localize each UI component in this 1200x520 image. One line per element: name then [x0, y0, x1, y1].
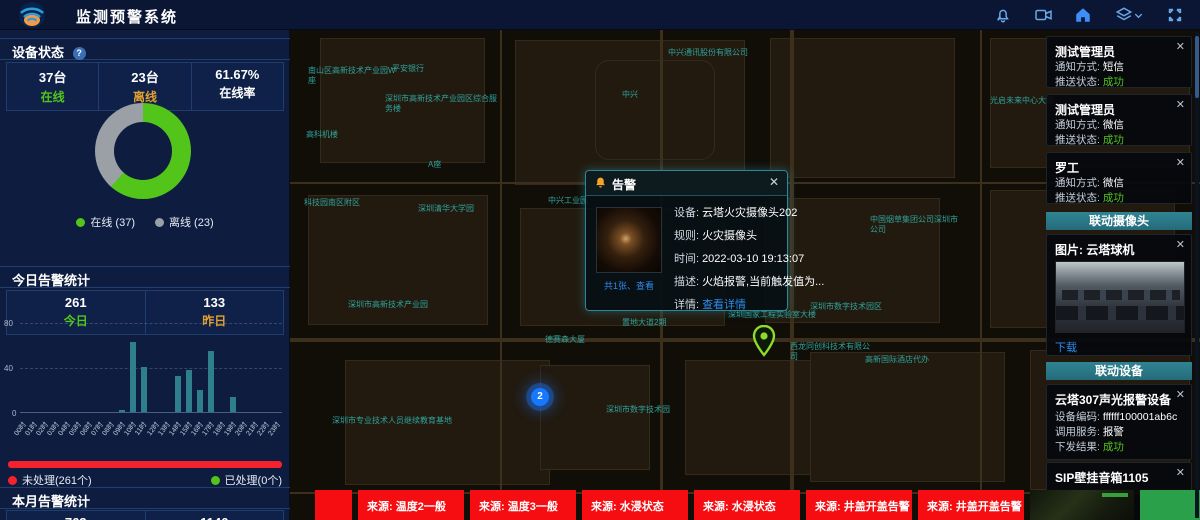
alert-source-chip[interactable]: 来源: 井盖开盖告警	[806, 490, 912, 520]
bar-plot-area	[20, 323, 282, 413]
notification-card-row-value: 短信	[1103, 61, 1124, 73]
device-status-header: 设备状态 ?	[0, 38, 290, 60]
linked-device-card-row-label: 设备编码:	[1055, 411, 1103, 423]
linked-camera-header[interactable]: 联动摄像头	[1046, 212, 1192, 230]
device-donut-legend: 在线 (37)离线 (23)	[0, 213, 290, 231]
scrollbar-track[interactable]	[1195, 32, 1199, 518]
camera-snapshot-image[interactable]	[1055, 261, 1185, 333]
device-stat-value: 61.67%	[192, 67, 283, 82]
bar	[130, 342, 136, 412]
linked-device-card-row-label: 下发结果:	[1055, 441, 1103, 453]
alert-field-row: 描述:火焰报警,当前触发值为...	[674, 273, 784, 289]
notification-card-row-value: 微信	[1103, 177, 1124, 189]
bar	[208, 351, 214, 412]
close-icon[interactable]: ✕	[1176, 388, 1185, 401]
alert-popup: 告警 ✕ 共1张、查看 设备:云塔火灾摄像头202规则:火灾摄像头时间:2022…	[585, 170, 788, 311]
notification-card-row-label: 推送状态:	[1055, 134, 1103, 146]
notification-card-row-value: 微信	[1103, 119, 1124, 131]
linked-device-card-row: 设备编码: ffffff100001ab6c	[1055, 409, 1177, 424]
left-stats-panel: 设备状态 ? 37台在线23台离线61.67%在线率 在线 (37)离线 (23…	[0, 30, 290, 520]
notification-card-row-value: 成功	[1103, 192, 1124, 204]
notification-card-title: 罗工	[1055, 159, 1079, 176]
layers-icon[interactable]	[1112, 4, 1146, 26]
video-camera-icon[interactable]	[1032, 4, 1054, 26]
linked-device-card-row-value: ffffff100001ab6c	[1103, 411, 1177, 423]
device-stat-value: 37台	[7, 67, 98, 86]
bar	[186, 370, 192, 412]
app-logo-icon	[16, 1, 48, 29]
alert-image-caption[interactable]: 共1张、查看	[592, 279, 666, 292]
notification-card: 测试管理员✕通知方式: 微信推送状态: 成功	[1046, 94, 1192, 146]
month-stat-value: 763	[7, 515, 145, 520]
map-place-label: 平安银行	[392, 64, 452, 74]
map-place-label: 高科机楼	[306, 130, 366, 140]
close-icon[interactable]: ✕	[1176, 466, 1185, 479]
monitoring-dashboard: 监测预警系统	[0, 0, 1200, 520]
device-stat-label: 在线率	[192, 84, 283, 101]
alert-popup-title: 告警	[612, 176, 636, 193]
map-place-label: 深圳市高新技术产业园	[348, 300, 433, 310]
notification-card-row: 推送状态: 成功	[1055, 190, 1124, 205]
map-place-label: 深圳市专业技术人员继续教育基地	[332, 416, 452, 426]
device-stat-cell: 61.67%在线率	[192, 63, 283, 110]
close-icon[interactable]: ✕	[1176, 40, 1185, 53]
device-stat-cell: 37台在线	[7, 63, 99, 110]
alert-source-chip[interactable]: 来源: 水浸状态	[582, 490, 688, 520]
alert-source-chip[interactable]: 来源: 水浸状态	[694, 490, 800, 520]
map-place-label: 置地大道2期	[622, 318, 692, 328]
notification-card: 测试管理员✕通知方式: 短信推送状态: 成功	[1046, 36, 1192, 88]
map-place-label: 中兴	[622, 90, 652, 100]
camera-thumbnail[interactable]	[1030, 490, 1134, 520]
close-icon[interactable]: ✕	[769, 175, 779, 189]
progress-legend: 未处理(261个) 已处理(0个)	[8, 472, 282, 486]
map-place-label: 深圳市数字技术园区	[810, 302, 890, 312]
alert-field-row: 设备:云塔火灾摄像头202	[674, 204, 784, 220]
map-place-label: 深圳清华大学园	[418, 204, 508, 214]
right-notification-panel: 测试管理员✕通知方式: 短信推送状态: 成功测试管理员✕通知方式: 微信推送状态…	[1046, 30, 1192, 520]
linked-camera-card: 图片: 云塔球机✕下载	[1046, 234, 1192, 356]
bar	[119, 410, 125, 412]
alert-field-row: 时间:2022-03-10 19:13:07	[674, 250, 784, 266]
legend-label: 在线 (37)	[90, 217, 135, 229]
alert-field-value: 2022-03-10 19:13:07	[702, 253, 804, 265]
linked-device-card-row-value: 报警	[1103, 426, 1124, 438]
close-icon[interactable]: ✕	[1176, 156, 1185, 169]
alert-field-row: 详情:查看详情	[674, 296, 784, 312]
notification-card-row-label: 通知方式:	[1055, 177, 1103, 189]
y-axis-tick: 80	[4, 319, 13, 328]
device-stat-value: 23台	[99, 67, 190, 86]
linked-device-card-title: SIP壁挂音箱1105	[1055, 469, 1148, 486]
alert-field-value: 火焰报警,当前触发值为...	[702, 276, 824, 288]
alert-field-label: 设备:	[674, 207, 699, 219]
notification-card-row-label: 通知方式:	[1055, 61, 1103, 73]
legend-item: 在线 (37)	[76, 214, 135, 230]
month-alerts-header: 本月告警统计	[0, 487, 290, 509]
linked-devices-header[interactable]: 联动设备	[1046, 362, 1192, 380]
fullscreen-icon[interactable]	[1164, 4, 1186, 26]
month-stat-cell: 763	[7, 511, 146, 520]
green-thumbnail[interactable]	[1140, 490, 1200, 520]
today-alerts-title: 今日告警统计	[12, 273, 90, 288]
map-place-label: 深圳市数字技术园	[606, 405, 701, 415]
view-details-link[interactable]: 查看详情	[702, 299, 746, 311]
map-place-label: 中兴通讯股份有限公司	[668, 48, 758, 58]
alert-source-chip[interactable]: 来源: 井盖开盖告警	[918, 490, 1024, 520]
notification-card: 罗工✕通知方式: 微信推送状态: 成功	[1046, 152, 1192, 204]
month-alerts-title: 本月告警统计	[12, 494, 90, 509]
alert-field-label: 详情:	[674, 299, 699, 311]
bottom-alert-strip: 来源: 温度2一般来源: 温度3一般来源: 水浸状态来源: 水浸状态来源: 井盖…	[290, 490, 1200, 520]
month-alerts-stats: 7631146	[6, 510, 284, 520]
notification-card-row: 通知方式: 短信	[1055, 59, 1124, 74]
header-icons	[992, 4, 1186, 26]
bar	[175, 376, 181, 412]
device-donut-chart	[95, 103, 191, 199]
alert-popup-header: 告警 ✕	[586, 171, 787, 196]
map-place-label: 中国烟草集团公司深圳市公司	[870, 215, 965, 235]
map-place-label: 高新国际酒店代办	[865, 355, 935, 365]
notification-card-row: 通知方式: 微信	[1055, 175, 1124, 190]
y-axis-tick: 0	[12, 409, 16, 418]
map-place-label: 南山区高新技术产业园W座	[308, 66, 403, 86]
linked-device-card-row-value: 成功	[1103, 441, 1124, 453]
notification-card-row: 通知方式: 微信	[1055, 117, 1124, 132]
help-icon[interactable]: ?	[73, 47, 86, 60]
linked-device-card-row: 下发结果: 成功	[1055, 439, 1124, 454]
camera-card-title: 图片: 云塔球机	[1055, 241, 1134, 258]
notification-card-title: 测试管理员	[1055, 43, 1115, 60]
legend-label: 离线 (23)	[169, 217, 214, 229]
linked-device-card-row-label: 调用服务:	[1055, 426, 1103, 438]
alert-source-chip[interactable]: 来源: 温度3一般	[470, 490, 576, 520]
alert-field-label: 时间:	[674, 253, 699, 265]
x-axis-labels: 00时01时02时03时04时05时06时07时08时09时10时11时12时1…	[20, 416, 282, 446]
notification-card-title: 测试管理员	[1055, 101, 1115, 118]
alert-field-value: 云塔火灾摄像头202	[702, 207, 797, 219]
legend-item: 离线 (23)	[155, 214, 214, 230]
map-place-label: A座	[428, 160, 458, 170]
notification-card-row-value: 成功	[1103, 134, 1124, 146]
y-axis-tick: 40	[4, 364, 13, 373]
handled-legend: 已处理(0个)	[211, 472, 282, 488]
chevron-down-icon	[1133, 10, 1144, 21]
legend-dot	[155, 218, 164, 227]
home-icon[interactable]	[1072, 4, 1094, 26]
bell-off-icon[interactable]	[992, 4, 1014, 26]
bar	[230, 397, 236, 412]
map-place-label: 深圳市高新技术产业园区综合服务楼	[385, 94, 500, 114]
notification-card-row-label: 推送状态:	[1055, 76, 1103, 88]
unhandled-legend: 未处理(261个)	[8, 472, 92, 488]
alert-snapshot-image[interactable]	[596, 207, 662, 273]
legend-dot	[76, 218, 85, 227]
alert-field-label: 描述:	[674, 276, 699, 288]
linked-device-card-title: 云塔307声光报警设备	[1055, 391, 1171, 408]
notification-card-row-label: 推送状态:	[1055, 192, 1103, 204]
close-icon[interactable]: ✕	[1176, 98, 1185, 111]
today-alerts-header: 今日告警统计	[0, 266, 290, 288]
alarm-bell-icon	[594, 176, 607, 190]
download-link[interactable]: 下载	[1055, 339, 1077, 355]
alert-field-row: 规则:火灾摄像头	[674, 227, 784, 243]
notification-card-row: 推送状态: 成功	[1055, 132, 1124, 147]
notification-card-row-label: 通知方式:	[1055, 119, 1103, 131]
linked-device-card: 云塔307声光报警设备✕设备编码: ffffff100001ab6c调用服务: …	[1046, 384, 1192, 460]
alert-field-label: 规则:	[674, 230, 699, 242]
map-pin-marker[interactable]	[752, 325, 776, 357]
device-status-title: 设备状态	[12, 45, 64, 60]
bar	[197, 390, 203, 413]
scrollbar-thumb[interactable]	[1195, 36, 1199, 98]
bar	[141, 367, 147, 412]
map-place-label: 西龙同创科技术有限公司	[790, 342, 870, 362]
header-bar: 监测预警系统	[0, 0, 1200, 30]
today-stat-value: 261	[7, 295, 145, 310]
map-place-label: 德赛森大厦	[545, 335, 615, 345]
alert-field-value: 火灾摄像头	[702, 230, 757, 242]
linked-device-card-row: 调用服务: 报警	[1055, 424, 1124, 439]
month-stat-cell: 1146	[146, 511, 284, 520]
month-stat-value: 1146	[146, 515, 284, 520]
map-place-label: 科技园南区附区	[304, 198, 394, 208]
close-icon[interactable]: ✕	[1176, 238, 1185, 251]
today-stat-value: 133	[146, 295, 284, 310]
device-stat-label: 在线	[7, 88, 98, 105]
map-cluster-marker[interactable]: 2	[531, 388, 549, 406]
notification-card-row-value: 成功	[1103, 76, 1124, 88]
alert-source-chip[interactable]: 来源: 温度2一般	[358, 490, 464, 520]
unhandled-progress-bar	[8, 461, 282, 468]
notification-card-row: 推送状态: 成功	[1055, 74, 1124, 89]
today-bar-chart: 8040000时01时02时03时04时05时06时07时08时09时10时11…	[0, 318, 290, 458]
page-title: 监测预警系统	[76, 6, 178, 27]
alert-chip-stub[interactable]	[315, 490, 352, 520]
